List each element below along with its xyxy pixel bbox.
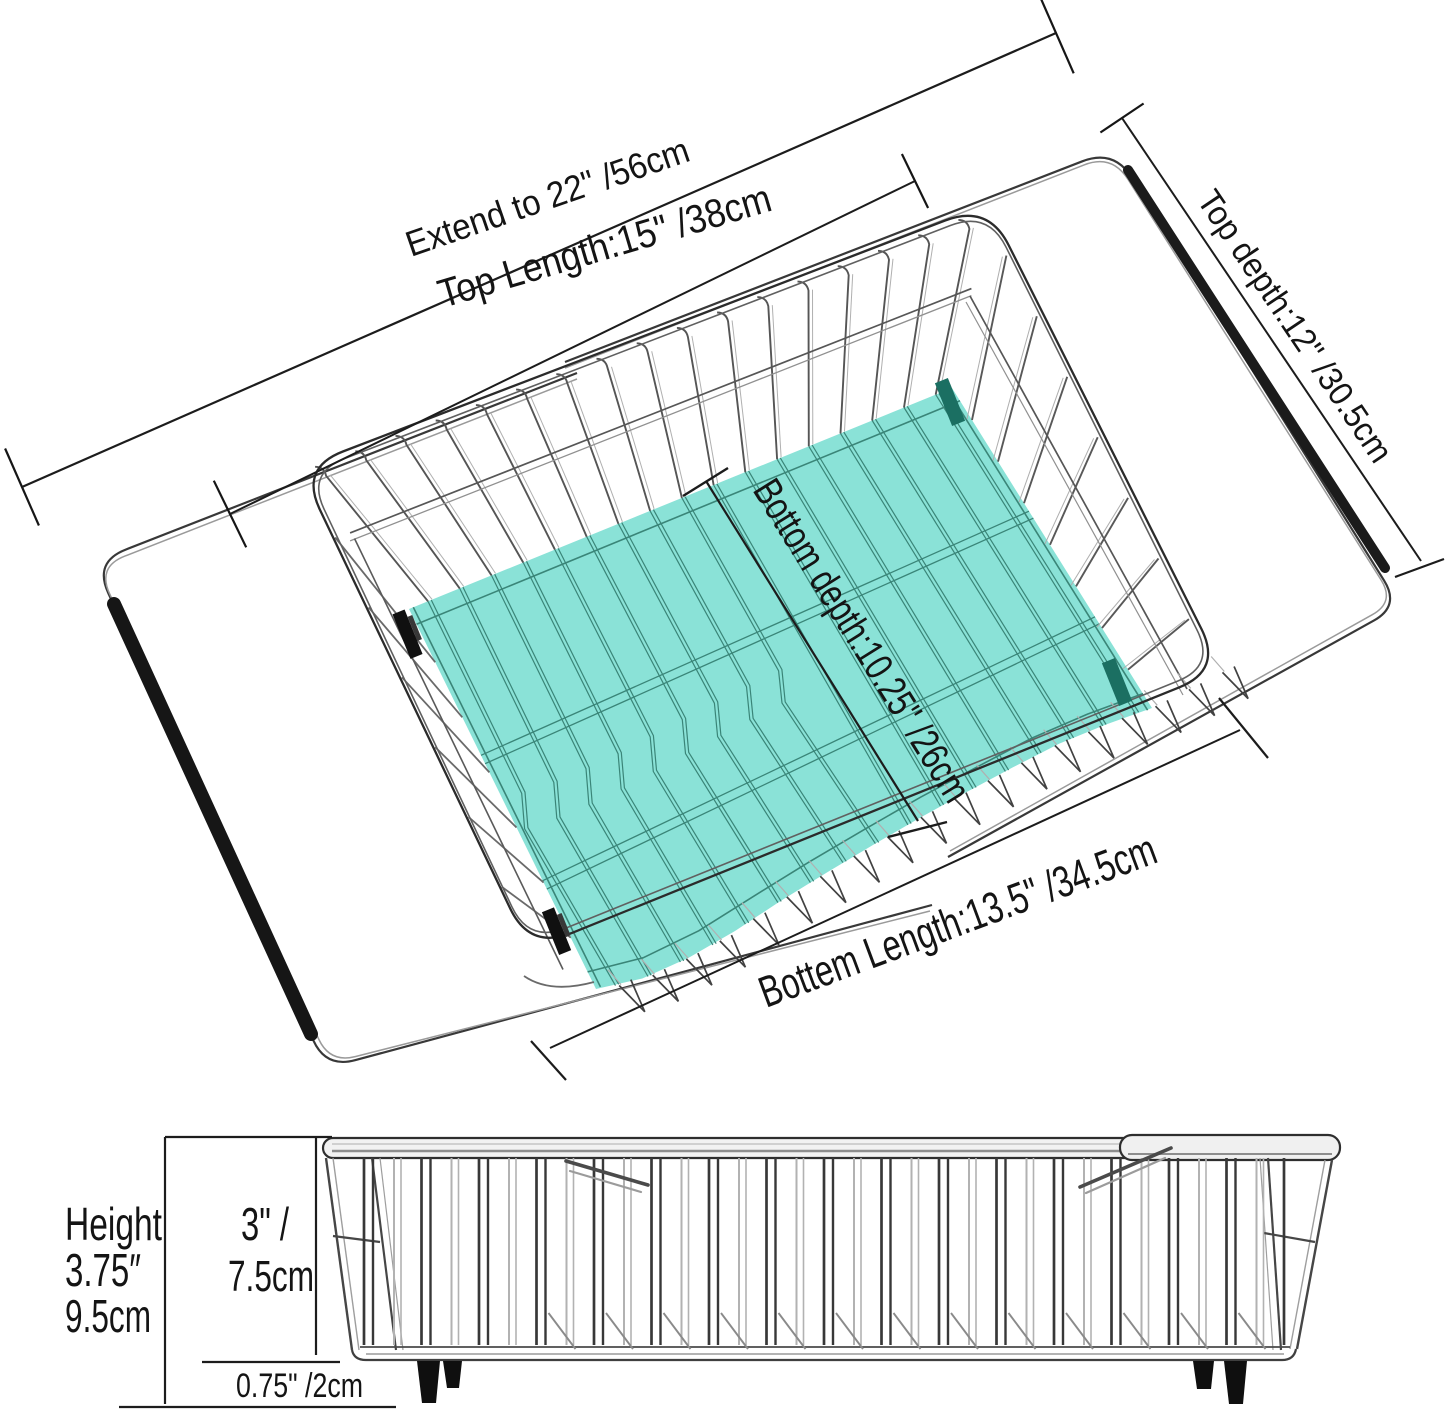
svg-text:7.5cm: 7.5cm (228, 1252, 314, 1301)
svg-text:9.5cm: 9.5cm (65, 1290, 151, 1342)
svg-text:0.75" /2cm: 0.75" /2cm (236, 1367, 363, 1405)
svg-text:Height: Height (65, 1198, 162, 1250)
svg-text:3" /: 3" / (241, 1198, 289, 1250)
svg-text:3.75″: 3.75″ (65, 1244, 141, 1296)
